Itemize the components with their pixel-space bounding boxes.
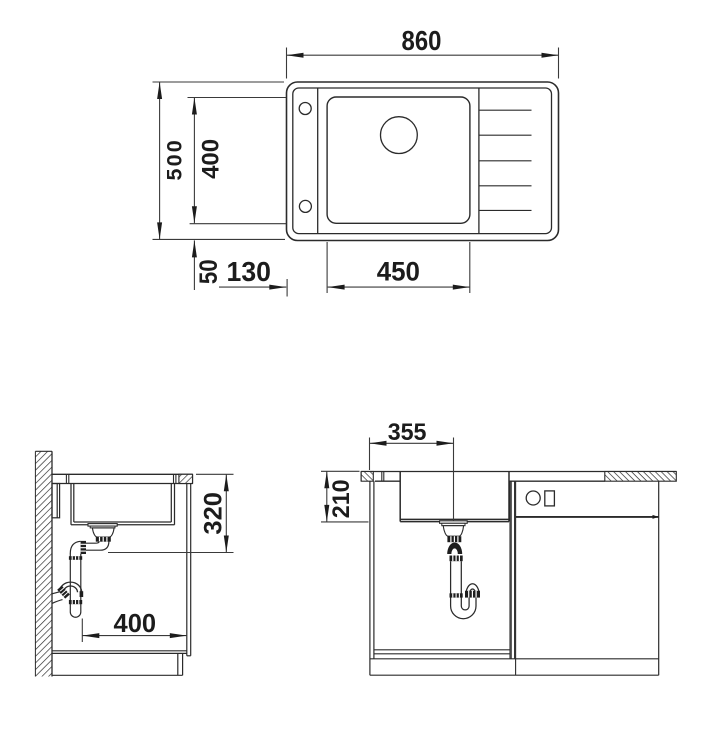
- svg-text:320: 320: [200, 492, 228, 535]
- svg-text:355: 355: [388, 418, 427, 446]
- svg-text:130: 130: [227, 255, 271, 287]
- svg-text:210: 210: [327, 479, 355, 518]
- svg-text:500: 500: [163, 138, 187, 180]
- svg-text:400: 400: [198, 139, 225, 179]
- svg-text:450: 450: [377, 256, 420, 287]
- svg-text:50: 50: [196, 259, 223, 284]
- svg-text:860: 860: [402, 26, 442, 56]
- svg-text:400: 400: [114, 610, 157, 638]
